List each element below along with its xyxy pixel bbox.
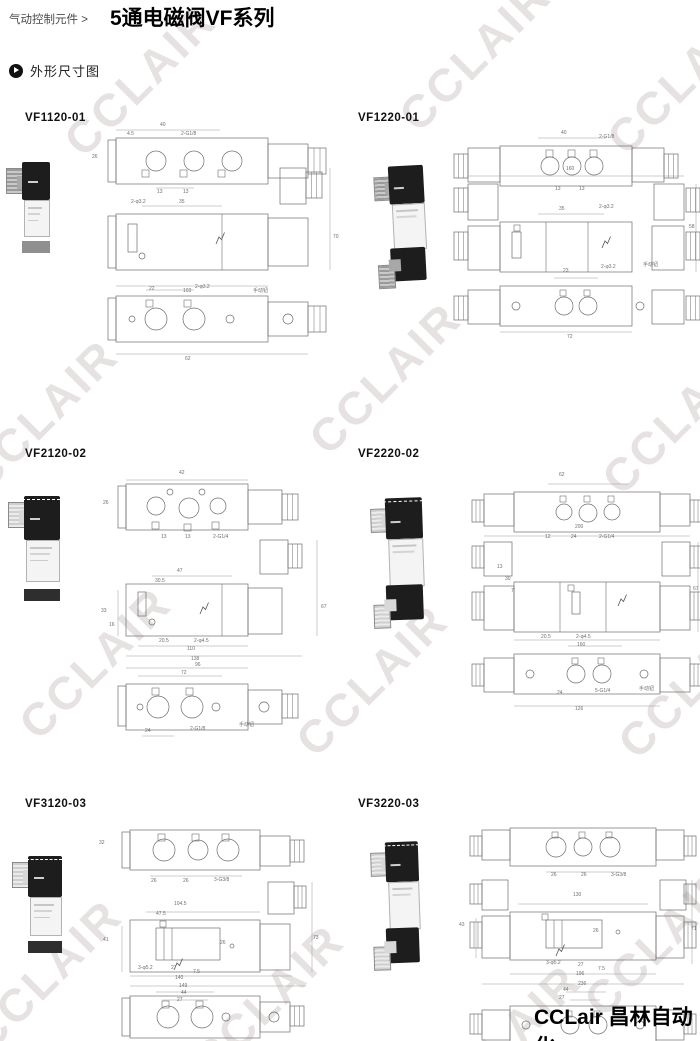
dim-label: 2-G1/4 — [599, 535, 614, 540]
dim-label: 2-G1/8 — [181, 132, 196, 137]
body-label-line — [30, 553, 50, 555]
valve-photo — [370, 495, 429, 633]
dim-label: 7.5 — [193, 970, 200, 975]
dim-label: 26 — [551, 873, 557, 878]
dim-label: 196 — [576, 972, 584, 977]
dim-label: 22 — [149, 287, 155, 292]
dim-label: 140 — [175, 976, 183, 981]
dim-label: 62 — [185, 357, 191, 362]
dim-label: 40 — [561, 131, 567, 136]
dim-label: 16 — [109, 623, 115, 628]
dim-label: 104.5 — [174, 902, 187, 907]
dim-label: 72 — [181, 671, 187, 676]
model-label: VF1120-01 — [25, 112, 86, 124]
dim-label: 72 — [567, 335, 573, 340]
plug-elbow-bottom — [389, 259, 402, 272]
coil-label-line — [28, 181, 38, 183]
dim-label: 2-G1/8 — [190, 727, 205, 732]
dim-label: 7.5 — [598, 967, 605, 972]
dim-label: 35 — [179, 200, 185, 205]
valve-cell-vf3120-03: VF3120-03 3226263-G3/8104.547.541263-φ5.… — [0, 790, 350, 1041]
dim-label: 160 — [566, 167, 574, 172]
dim-label: 3-φ5.2 — [138, 966, 153, 971]
valve-photo — [370, 839, 425, 975]
dim-label: 26 — [220, 941, 226, 946]
dim-label: 13 — [185, 535, 191, 540]
section-header: 外形尺寸图 — [9, 61, 100, 80]
breadcrumb[interactable]: 气动控制元件 > — [9, 11, 88, 27]
dim-label: 2-φ4.5 — [576, 635, 591, 640]
valve-body — [24, 200, 50, 237]
model-label: VF3120-03 — [25, 798, 86, 810]
dim-label: 200 — [575, 525, 583, 530]
dim-label: 13 — [497, 565, 503, 570]
dim-label: 2-G1/4 — [213, 535, 228, 540]
dim-label: 73 — [313, 936, 319, 941]
catalog-page: CCLAIRCCLAIRCCLAIRCCLAIRCCLAIRCCLAIRCCLA… — [0, 0, 700, 1041]
dim-label: 12 — [545, 535, 551, 540]
body-label-line — [30, 547, 52, 549]
valve-cell-vf2120-02: VF2120-02 422613132-G1/44730.5331620.52-… — [0, 440, 350, 790]
valve-cell-vf1220-01: VF1220-01 402-G1/81313160352-φ3.258232-φ… — [350, 108, 700, 440]
model-label: VF2220-02 — [358, 448, 419, 460]
dim-label: 手动钮 — [253, 289, 268, 294]
section-title: 外形尺寸图 — [30, 61, 100, 80]
dim-label: 71 — [691, 927, 697, 932]
coil-label-line — [30, 518, 40, 520]
dim-label: 27 — [171, 966, 177, 971]
plug-elbow-bottom — [384, 599, 396, 611]
dimension-drawing — [112, 478, 327, 740]
dim-label: 35 — [559, 207, 565, 212]
dim-label: 26 — [183, 879, 189, 884]
dim-label: 44 — [181, 991, 187, 996]
dim-label: 26 — [593, 929, 599, 934]
dim-label: 27 — [578, 963, 584, 968]
dim-label: 23 — [563, 269, 569, 274]
valve-cell-vf1120-01: VF1120-01 404.52-G1/82613132-φ3.23570103… — [0, 108, 350, 440]
model-label: VF2120-02 — [25, 448, 86, 460]
dim-label: 24 — [571, 535, 577, 540]
dim-label: 40 — [160, 123, 166, 128]
brand-logo: CCLair 昌林自动化 — [534, 1001, 700, 1041]
dim-label: 160 — [577, 643, 585, 648]
dim-label: 58 — [689, 225, 695, 230]
dim-label: 44 — [563, 988, 569, 993]
dim-label: 13 — [579, 187, 585, 192]
dim-label: 2-G1/8 — [599, 135, 614, 140]
valve-photo — [12, 852, 64, 954]
dimension-drawing — [472, 480, 700, 716]
dim-label: 3-G3/8 — [214, 878, 229, 883]
dim-label: 26 — [151, 879, 157, 884]
dim-label: 7 — [511, 589, 514, 594]
dim-label: 67 — [321, 605, 327, 610]
dim-label: 41 — [103, 938, 109, 943]
model-label: VF3220-03 — [358, 798, 419, 810]
dimension-drawing — [454, 126, 700, 338]
dim-label: 130 — [573, 893, 581, 898]
body-label-line — [30, 560, 48, 561]
marker-dashed-line — [26, 859, 62, 861]
dim-label: 96 — [195, 663, 201, 668]
dim-label: 13 — [555, 187, 561, 192]
dim-label: 27 — [177, 998, 183, 1003]
dim-label: 2-φ4.5 — [194, 639, 209, 644]
dim-label: 手动钮 — [643, 263, 658, 268]
body-label-line — [34, 910, 52, 912]
dim-label: 3-φ5.2 — [546, 961, 561, 966]
valve-photo — [6, 158, 52, 254]
dim-label: 47.5 — [156, 912, 166, 917]
dim-label: 26 — [103, 501, 109, 506]
dim-label: 4.5 — [127, 132, 134, 137]
solenoid-coil-top — [385, 497, 423, 539]
dim-label: 47 — [177, 569, 183, 574]
model-label: VF1220-01 — [358, 112, 419, 124]
dim-label: 手动钮 — [239, 723, 254, 728]
dim-label: 2-φ3.2 — [131, 200, 146, 205]
dim-label: 2-φ3.2 — [195, 285, 210, 290]
valve-photo — [373, 163, 432, 294]
dim-label: 2-φ3.2 — [601, 265, 616, 270]
coil-label-line — [34, 877, 44, 879]
dim-label: 26 — [581, 873, 587, 878]
body-label-line — [28, 207, 42, 209]
dim-label: 149 — [179, 984, 187, 989]
dim-label: 42 — [179, 471, 185, 476]
dim-label: 126 — [575, 707, 583, 712]
plug-elbow-bottom — [384, 941, 396, 953]
solenoid-coil-top — [385, 841, 419, 882]
dim-label: 62 — [559, 473, 565, 478]
dimension-drawing — [116, 826, 321, 1041]
dim-label: 13 — [157, 190, 163, 195]
dim-label: 30.5 — [155, 579, 165, 584]
dim-label: 20.5 — [159, 639, 169, 644]
dim-label: 43 — [459, 923, 465, 928]
dim-label: 103 — [183, 289, 191, 294]
dim-label: 67 — [693, 587, 699, 592]
dim-label: 13 — [183, 190, 189, 195]
valve-photo — [8, 492, 62, 602]
play-bullet-icon — [9, 64, 23, 78]
dim-label: 70 — [333, 235, 339, 240]
body-label-line — [34, 917, 50, 918]
solenoid-coil-top — [388, 165, 425, 205]
dim-label: 110 — [187, 647, 195, 652]
dim-label: 33 — [101, 609, 107, 614]
body-label-line — [28, 213, 40, 215]
dim-label: 20.5 — [541, 635, 551, 640]
dim-label: 3-G3/8 — [611, 873, 626, 878]
dim-label: 手动钮 — [639, 687, 654, 692]
coil-label-line — [391, 864, 401, 866]
dim-label: 24 — [145, 729, 151, 734]
dim-label: 5-G1/4 — [595, 689, 610, 694]
body-label-line — [28, 220, 38, 221]
valve-cell-vf2220-02: VF2220-02 6212242-G1/42001330720.52-φ4.5… — [350, 440, 700, 790]
dim-label: 2-φ3.2 — [599, 205, 614, 210]
body-label-line — [34, 904, 54, 906]
dim-label: 26 — [92, 155, 98, 160]
coil-label-line — [391, 521, 401, 523]
dim-label: 30 — [505, 577, 511, 582]
valve-base — [24, 589, 60, 601]
valve-base — [28, 941, 62, 953]
dim-label: 24 — [557, 691, 563, 696]
marker-dashed-line — [22, 499, 60, 501]
dim-label: 236 — [578, 982, 586, 987]
page-title: 5通电磁阀VF系列 — [110, 2, 275, 32]
dim-label: 32 — [99, 841, 105, 846]
valve-base — [22, 241, 50, 253]
dimension-drawing — [102, 122, 342, 362]
dim-label: 13 — [161, 535, 167, 540]
